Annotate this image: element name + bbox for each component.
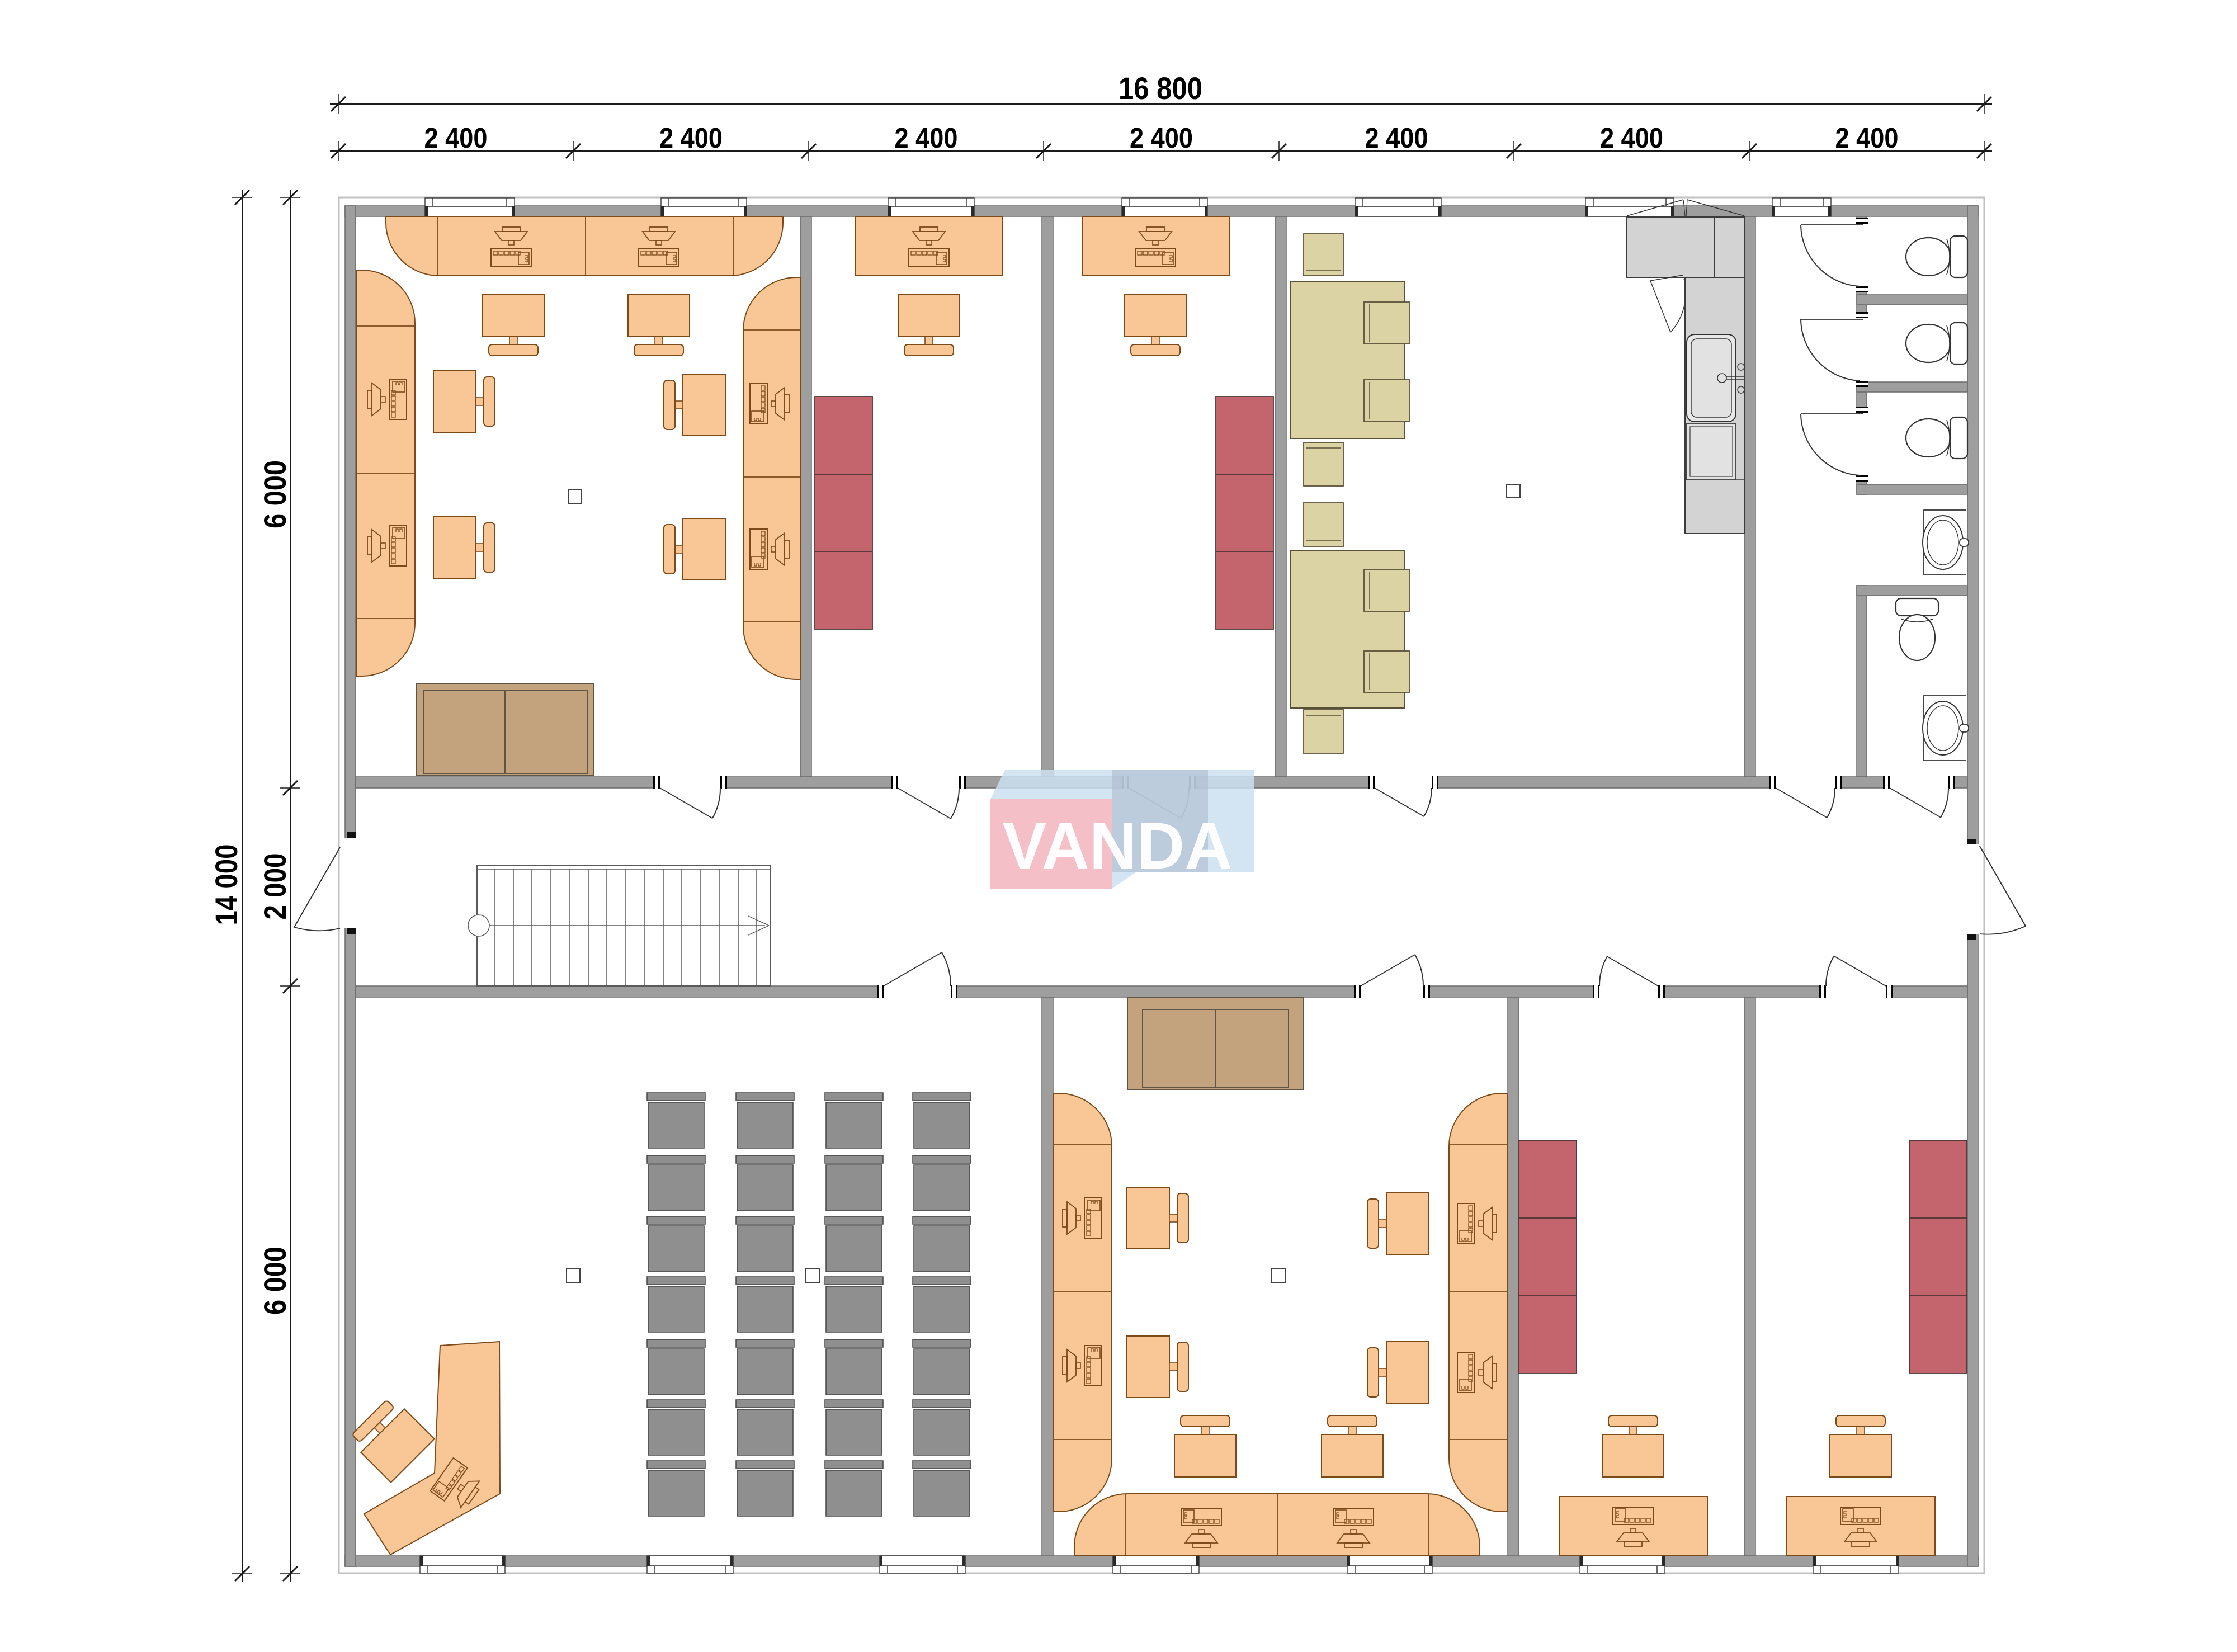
svg-text:2 400: 2 400 <box>424 122 488 154</box>
svg-text:14 000: 14 000 <box>209 844 244 926</box>
svg-text:6 000: 6 000 <box>257 460 292 528</box>
svg-text:2 400: 2 400 <box>1835 122 1899 154</box>
svg-text:VANDA: VANDA <box>1003 809 1233 883</box>
svg-text:2 400: 2 400 <box>1365 122 1428 154</box>
svg-text:2 400: 2 400 <box>1130 122 1193 154</box>
svg-text:2 400: 2 400 <box>895 122 958 154</box>
svg-text:2 400: 2 400 <box>1600 122 1663 154</box>
svg-text:2 400: 2 400 <box>659 122 723 154</box>
svg-text:2 000: 2 000 <box>257 853 292 920</box>
svg-text:6 000: 6 000 <box>257 1247 292 1315</box>
svg-text:16 800: 16 800 <box>1118 70 1202 106</box>
